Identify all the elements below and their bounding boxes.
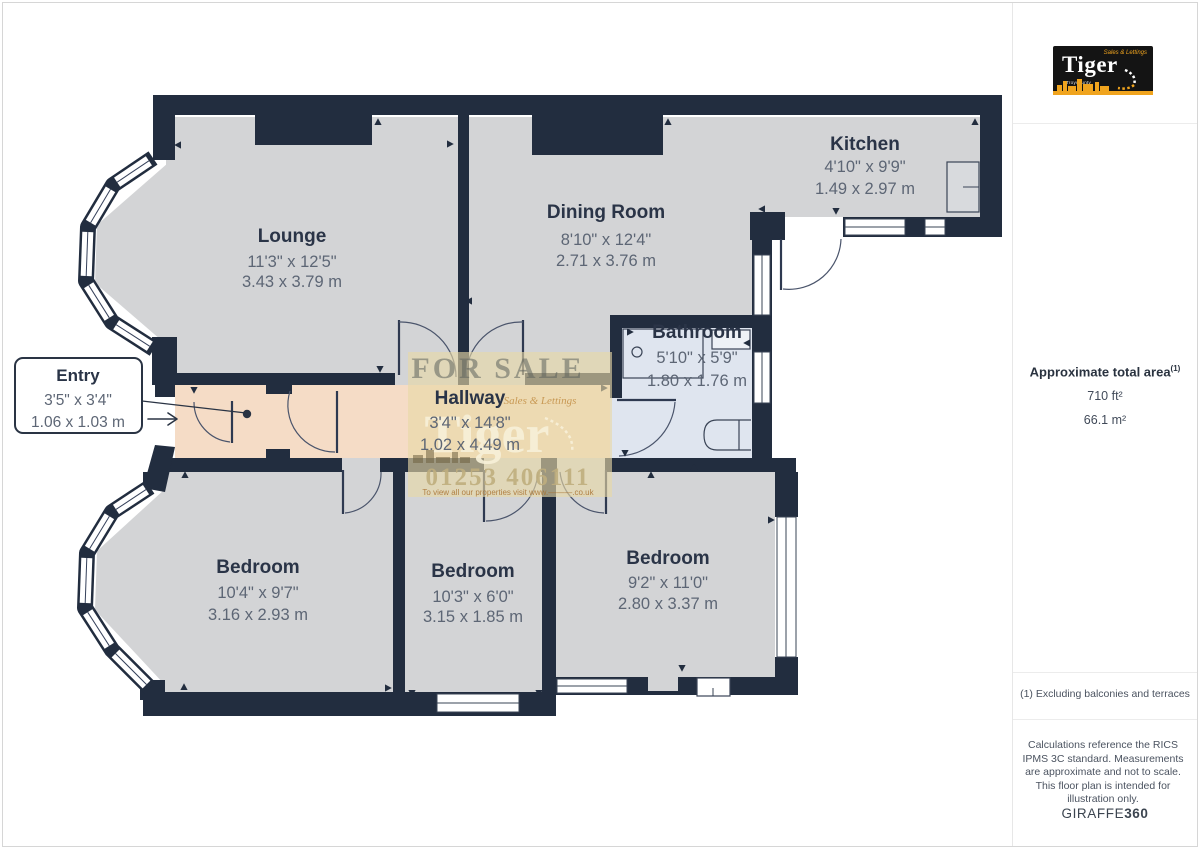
agency-logo: Sales & Lettings Tiger Troycounty: [1053, 46, 1153, 95]
room-dims-ft: 5'10" x 5'9": [656, 349, 737, 367]
room-dims-ft: 11'3" x 12'5": [247, 253, 336, 271]
kitchen-appliance-icon: [947, 162, 979, 212]
room-dims-m: 3.15 x 1.85 m: [423, 608, 523, 626]
room-dims-m: 2.80 x 3.37 m: [618, 595, 718, 613]
bed3-flue: [697, 678, 730, 696]
bed3-wall-recess: [648, 677, 678, 691]
watermark-visit-line: To view all our properties visit www.———…: [422, 488, 594, 497]
hall-door-stub: [266, 385, 292, 394]
room-dims-ft: 10'3" x 6'0": [432, 588, 513, 606]
watermark-phone: 01253 406111: [426, 464, 591, 491]
total-area-sqft: 710 ft²: [1014, 389, 1196, 403]
giraffe360-normal: GIRAFFE: [1061, 806, 1124, 821]
bed2-bed3-divider: [542, 472, 556, 694]
room-label-hallway: Hallway: [435, 388, 506, 409]
total-area-sqm: 66.1 m²: [1014, 413, 1196, 427]
callout-dims-ft: 3'5" x 3'4": [44, 392, 112, 409]
sidebar-rule-1: [1013, 123, 1197, 124]
room-dims-ft: 10'4" x 9'7": [217, 584, 298, 602]
room-dims-ft: 3'4" x 14'8": [429, 414, 510, 432]
room-label-bedroom3: Bedroom: [626, 548, 709, 569]
bed1-bed2-divider: [393, 472, 405, 692]
lounge-dining-divider: [458, 115, 469, 385]
hall-door-stub: [266, 449, 290, 458]
room-dims-m: 1.02 x 4.49 m: [420, 436, 520, 454]
room-dims-m: 3.16 x 2.93 m: [208, 606, 308, 624]
giraffe360-bold: 360: [1124, 806, 1148, 821]
floorplan-page: FOR SALE Sales & Lettings Tiger 01253 40…: [0, 0, 1200, 849]
kitchen-door-arc: [783, 239, 841, 289]
sidebar-rule-2: [1013, 672, 1197, 673]
total-area-title: Approximate total area(1): [1014, 364, 1196, 379]
entry-direction-arrow-icon: [148, 413, 177, 425]
sidebar-rule-3: [1013, 719, 1197, 720]
room-label-lounge: Lounge: [258, 226, 327, 247]
room-label-bedroom2: Bedroom: [431, 561, 514, 582]
room-dims-m: 2.71 x 3.76 m: [556, 252, 656, 270]
giraffe360-brand: GIRAFFE360: [1014, 806, 1196, 821]
room-dims-m: 1.80 x 1.76 m: [647, 372, 747, 390]
disclaimer-text: Calculations reference the RICS IPMS 3C …: [1022, 739, 1184, 807]
room-dims-ft: 4'10" x 9'9": [824, 158, 905, 176]
logo-bottom-bar: [1053, 91, 1153, 95]
room-label-dining: Dining Room: [547, 202, 665, 223]
room-dims-ft: 8'10" x 12'4": [561, 231, 652, 249]
room-label-bathroom: Bathroom: [652, 322, 742, 343]
callout-room-name: Entry: [56, 366, 100, 385]
lounge-chimney-breast: [255, 115, 372, 145]
room-dims-ft: 9'2" x 11'0": [628, 574, 708, 592]
bedroom1-floor: [163, 472, 393, 692]
watermark-for-sale: FOR SALE: [411, 352, 584, 385]
area-footnote: (1) Excluding balconies and terraces: [1014, 688, 1196, 700]
floor-plan: FOR SALE Sales & Lettings Tiger 01253 40…: [0, 0, 1012, 849]
room-dims-m: 1.49 x 2.97 m: [815, 180, 915, 198]
callout-anchor-dot: [243, 410, 251, 418]
bed1-door-gap: [342, 458, 380, 472]
total-area-footnote-ref: (1): [1171, 364, 1181, 373]
dining-chimney-breast: [532, 115, 663, 155]
room-dims-m: 3.43 x 3.79 m: [242, 273, 342, 291]
total-area-title-text: Approximate total area: [1030, 364, 1171, 379]
watermark-brand: Tiger: [425, 404, 550, 464]
callout-dims-m: 1.06 x 1.03 m: [31, 414, 125, 431]
room-label-bedroom1: Bedroom: [216, 557, 299, 578]
room-label-kitchen: Kitchen: [830, 134, 900, 155]
